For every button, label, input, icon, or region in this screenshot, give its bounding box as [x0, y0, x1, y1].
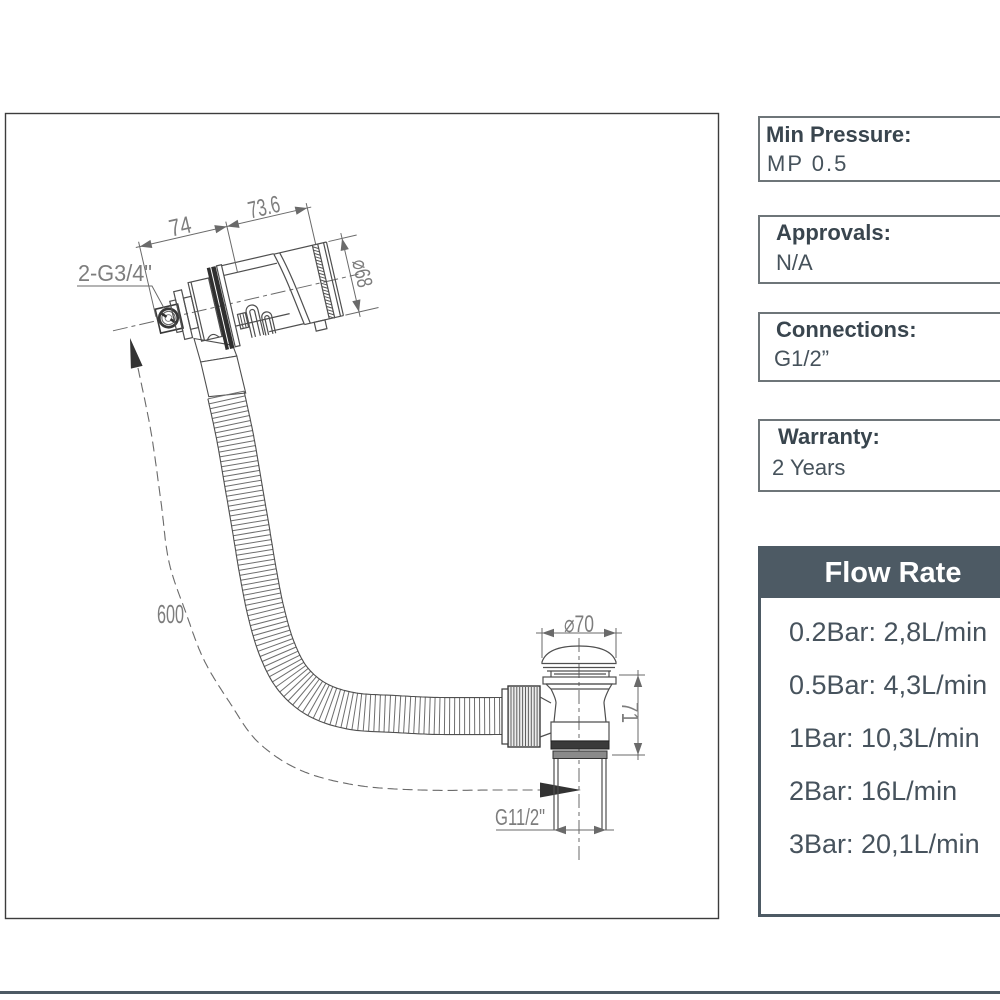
svg-text:74: 74	[167, 211, 195, 242]
svg-text:G11/2": G11/2"	[495, 804, 545, 830]
svg-text:600: 600	[157, 599, 184, 629]
svg-text:⌀70: ⌀70	[564, 611, 594, 638]
svg-text:71: 71	[616, 702, 643, 723]
svg-text:73.6: 73.6	[246, 191, 283, 225]
svg-text:2-G3/4": 2-G3/4"	[78, 260, 152, 286]
svg-text:⌀68: ⌀68	[347, 257, 378, 290]
